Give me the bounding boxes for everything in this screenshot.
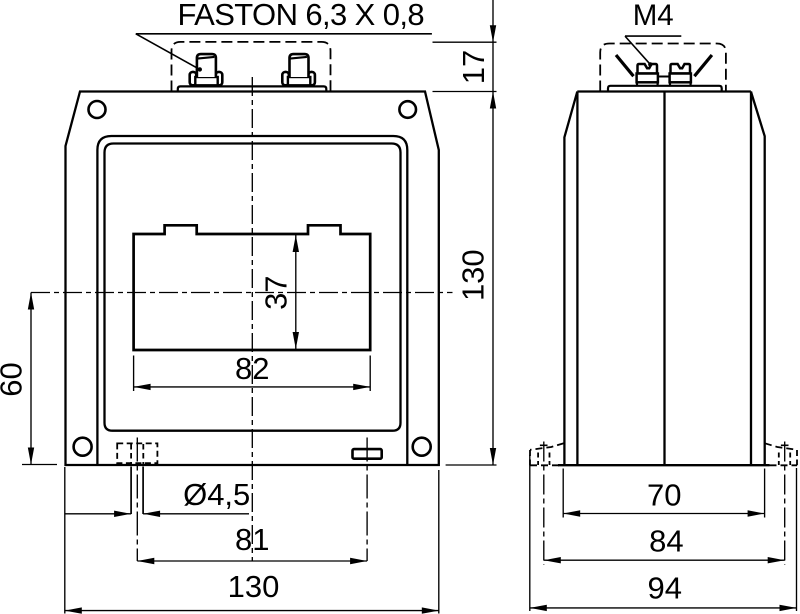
svg-text:M4: M4	[633, 0, 674, 32]
svg-text:130: 130	[455, 249, 490, 301]
svg-text:81: 81	[235, 522, 269, 557]
svg-text:60: 60	[0, 362, 29, 396]
svg-text:37: 37	[259, 275, 294, 309]
svg-text:17: 17	[456, 50, 491, 84]
svg-text:84: 84	[649, 524, 683, 559]
svg-text:Ø4,5: Ø4,5	[183, 477, 250, 512]
svg-text:70: 70	[647, 478, 681, 513]
svg-text:82: 82	[235, 351, 269, 386]
svg-text:FASTON 6,3 X 0,8: FASTON 6,3 X 0,8	[178, 0, 425, 32]
svg-text:94: 94	[648, 571, 682, 606]
svg-text:130: 130	[228, 569, 280, 604]
